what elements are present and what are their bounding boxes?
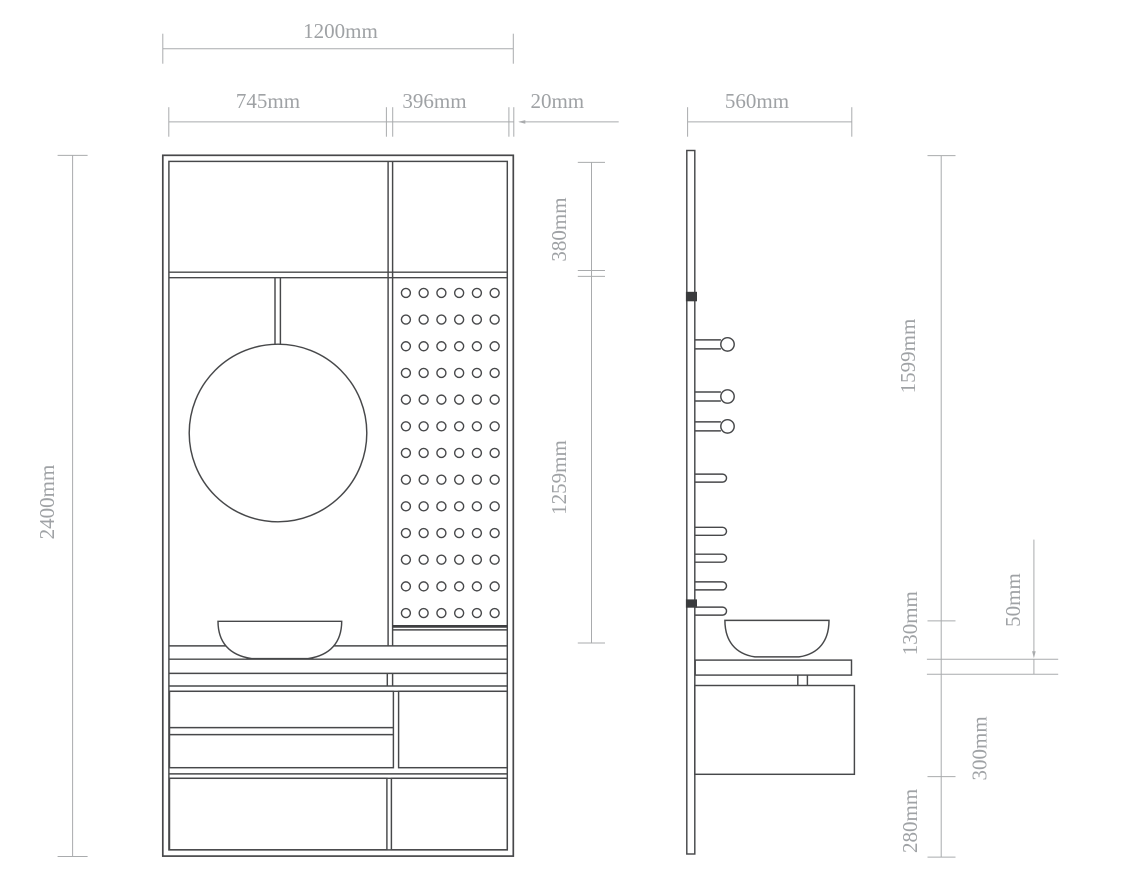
svg-text:130mm: 130mm xyxy=(898,591,922,655)
svg-text:1599mm: 1599mm xyxy=(896,319,920,394)
svg-text:50mm: 50mm xyxy=(1001,573,1025,627)
svg-text:20mm: 20mm xyxy=(530,89,584,113)
svg-text:396mm: 396mm xyxy=(402,89,466,113)
svg-text:1259mm: 1259mm xyxy=(547,440,571,515)
svg-text:300mm: 300mm xyxy=(968,716,992,780)
svg-text:745mm: 745mm xyxy=(236,89,300,113)
svg-text:1200mm: 1200mm xyxy=(303,19,378,43)
svg-text:380mm: 380mm xyxy=(547,197,571,261)
svg-text:280mm: 280mm xyxy=(898,789,922,853)
svg-text:560mm: 560mm xyxy=(725,89,789,113)
svg-text:2400mm: 2400mm xyxy=(35,465,59,540)
